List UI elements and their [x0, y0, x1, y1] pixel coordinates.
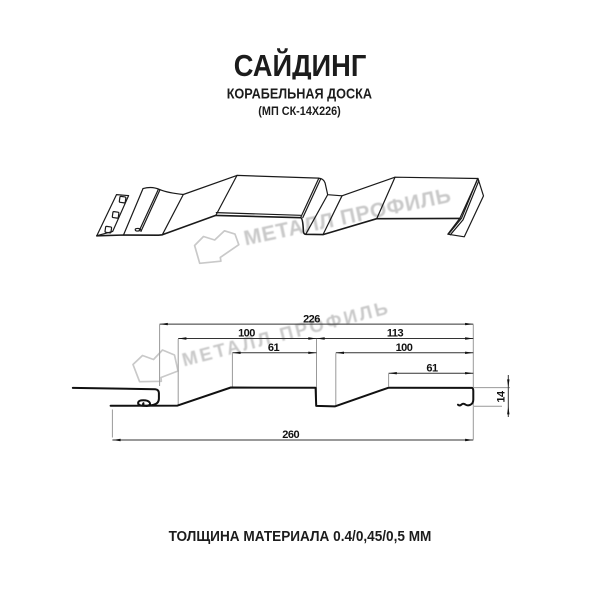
svg-text:61: 61 — [426, 362, 438, 374]
svg-text:113: 113 — [387, 328, 404, 340]
svg-text:КОРАБЕЛЬНАЯ ДОСКА: КОРАБЕЛЬНАЯ ДОСКА — [227, 86, 372, 103]
svg-text:100: 100 — [238, 328, 255, 340]
svg-text:260: 260 — [282, 429, 299, 441]
svg-text:14: 14 — [496, 390, 508, 403]
svg-text:226: 226 — [303, 313, 320, 325]
svg-text:(МП СК-14Х226): (МП СК-14Х226) — [258, 106, 341, 118]
svg-text:61: 61 — [268, 342, 280, 354]
svg-text:ТОЛЩИНА МАТЕРИАЛА 0.4/0,45/0,5: ТОЛЩИНА МАТЕРИАЛА 0.4/0,45/0,5 ММ — [169, 528, 432, 545]
svg-text:САЙДИНГ: САЙДИНГ — [234, 47, 366, 83]
svg-text:100: 100 — [396, 342, 413, 354]
